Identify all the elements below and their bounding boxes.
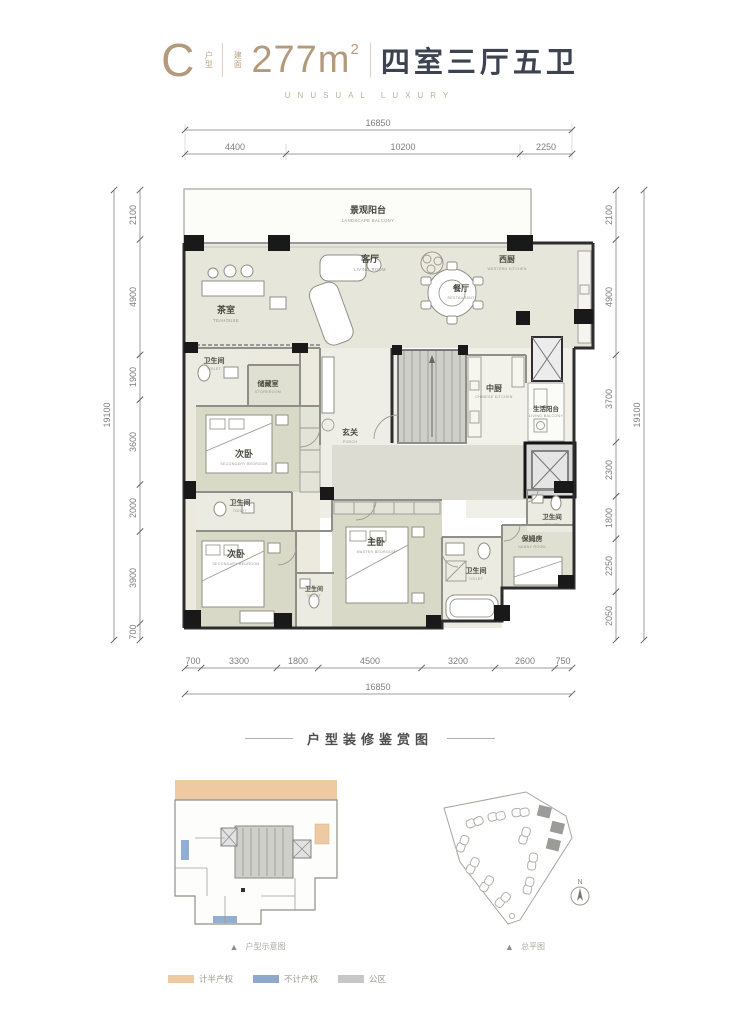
dim-bottom-2: 3300 bbox=[229, 656, 249, 666]
siteplan-caption: ▲ 总平图 bbox=[430, 941, 620, 952]
label-cn-kitchen-cn: 中厨 bbox=[486, 383, 502, 393]
dim-left-2: 4900 bbox=[128, 287, 138, 307]
label-dining-cn: 餐厅 bbox=[452, 283, 469, 293]
legend-label-counted: 计半产权 bbox=[199, 973, 233, 985]
dim-right-6: 2250 bbox=[604, 556, 614, 576]
legend-label-public: 公区 bbox=[369, 973, 386, 985]
dim-right-3: 3700 bbox=[604, 389, 614, 409]
legend-swatch-orange bbox=[168, 975, 194, 983]
label-living-cn: 客厅 bbox=[360, 253, 379, 264]
label-bedroom-b-en: SECONDARY BEDROOM bbox=[212, 562, 259, 566]
label-toilet2-en: TOILET bbox=[233, 509, 248, 513]
dim-right-total: 19100 bbox=[632, 402, 642, 427]
header: C 户型 建面 277m2 四室三厅五卫 UNUSUAL LUXURY bbox=[0, 38, 740, 100]
layout-text: 四室三厅五卫 bbox=[381, 39, 579, 81]
legend-label-not-counted: 不计产权 bbox=[284, 973, 318, 985]
label-storage-cn: 储藏室 bbox=[257, 379, 279, 388]
unit-suffix: 户型 bbox=[204, 51, 212, 69]
label-bedroom-a-en: SECONDARY BEDROOM bbox=[220, 462, 267, 466]
dim-right-1: 2100 bbox=[604, 205, 614, 225]
dim-top-2: 10200 bbox=[390, 142, 415, 152]
dim-top-total: 16850 bbox=[365, 118, 390, 128]
label-nanny-en: NANNY ROOM bbox=[518, 545, 546, 549]
label-storage-en: STOREROOM bbox=[255, 390, 281, 394]
dimension-strip-right: 2100 4900 3700 2300 1800 2250 2050 19100 bbox=[600, 184, 660, 646]
dimension-strip-left: 19100 2100 4900 1900 3600 2000 3900 700 bbox=[98, 184, 154, 646]
label-toilet3-en: TOILET bbox=[307, 594, 322, 598]
legend-item-not-counted: 不计产权 bbox=[253, 973, 318, 985]
label-master-en: MASTER BEDROOM bbox=[357, 550, 396, 554]
site-plan: N bbox=[430, 778, 620, 938]
compass-north-label: N bbox=[577, 879, 582, 886]
stairs bbox=[398, 350, 466, 443]
dim-left-7: 700 bbox=[128, 624, 138, 639]
dim-left-1: 2100 bbox=[128, 205, 138, 225]
label-life-balcony-en: LIVING BALCONY bbox=[529, 414, 563, 418]
legend-swatch-blue bbox=[253, 975, 279, 983]
dimension-strip-bottom: 700 3300 1800 4500 3200 2600 750 16850 bbox=[180, 654, 580, 706]
room-balcony bbox=[184, 189, 531, 243]
section-divider: 户型装修鉴赏图 bbox=[0, 729, 740, 748]
label-bedroom-b-cn: 次卧 bbox=[227, 548, 245, 559]
triangle-icon: ▲ bbox=[230, 942, 239, 952]
dim-right-5: 1800 bbox=[604, 508, 614, 528]
dim-bottom-6: 2600 bbox=[515, 656, 535, 666]
label-toilet5-cn: 卫生间 bbox=[542, 512, 562, 521]
dim-bottom-3: 1800 bbox=[288, 656, 308, 666]
header-divider-2 bbox=[370, 43, 371, 77]
label-toilet1-cn: 卫生间 bbox=[204, 356, 225, 365]
area-number: 277m bbox=[251, 39, 350, 81]
label-west-kitchen-en: WESTERN KITCHEN bbox=[487, 267, 526, 271]
label-toilet4-en: TOILET bbox=[469, 577, 484, 581]
floor-plan: 景观阳台 LANDSCAPE BALCONY 茶室 TEAHOUSE 客厅 LI… bbox=[180, 185, 595, 650]
label-nanny-cn: 保姆房 bbox=[521, 534, 543, 543]
dim-right-2: 4900 bbox=[604, 287, 614, 307]
label-balcony-en: LANDSCAPE BALCONY bbox=[342, 218, 395, 223]
dimension-strip-top: 16850 4400 10200 2250 bbox=[180, 116, 580, 170]
area-value: 277m2 bbox=[251, 39, 359, 82]
divider-line-left bbox=[245, 738, 293, 739]
unit-letter: C bbox=[161, 38, 194, 82]
elevator-upper bbox=[532, 337, 562, 381]
keyplan-caption: ▲ 户型示意图 bbox=[165, 941, 350, 952]
dim-right-4: 2300 bbox=[604, 460, 614, 480]
compass-icon: N bbox=[571, 879, 589, 905]
label-toilet2-cn: 卫生间 bbox=[230, 498, 251, 507]
label-tea-en: TEAHOUSE bbox=[213, 318, 239, 323]
dim-top-3: 2250 bbox=[536, 142, 556, 152]
label-living-en: LIVING ROOM bbox=[354, 267, 386, 272]
dim-left-6: 3900 bbox=[128, 568, 138, 588]
label-master-cn: 主卧 bbox=[367, 536, 385, 547]
dim-left-4: 3600 bbox=[128, 432, 138, 452]
label-bedroom-a-cn: 次卧 bbox=[235, 448, 253, 459]
key-plan bbox=[165, 778, 350, 938]
label-west-kitchen-cn: 西厨 bbox=[499, 254, 515, 264]
label-toilet3-cn: 卫生间 bbox=[305, 585, 323, 593]
dim-left-total: 19100 bbox=[102, 402, 112, 427]
label-dining-en: RESTAURANT bbox=[447, 296, 475, 300]
area-exponent: 2 bbox=[350, 41, 359, 58]
legend-swatch-gray bbox=[338, 975, 364, 983]
label-toilet5-en: TOILET bbox=[545, 523, 560, 527]
dim-left-3: 1900 bbox=[128, 367, 138, 387]
legend-item-public: 公区 bbox=[338, 973, 386, 985]
dim-bottom-7: 750 bbox=[555, 656, 570, 666]
label-life-balcony-cn: 生活阳台 bbox=[533, 404, 560, 413]
label-toilet4-cn: 卫生间 bbox=[466, 566, 487, 575]
dim-bottom-total: 16850 bbox=[365, 682, 390, 692]
label-porch-en: PORCH bbox=[343, 440, 358, 444]
label-toilet1-en: TOILET bbox=[207, 367, 222, 371]
dim-left-5: 2000 bbox=[128, 498, 138, 518]
dim-right-7: 2050 bbox=[604, 606, 614, 626]
area-prefix: 建面 bbox=[233, 51, 241, 69]
siteplan-caption-text: 总平图 bbox=[521, 941, 545, 952]
legend-item-counted: 计半产权 bbox=[168, 973, 233, 985]
label-balcony-cn: 景观阳台 bbox=[350, 204, 386, 215]
siteplan-boundary bbox=[444, 792, 572, 924]
keyplan-core bbox=[235, 826, 293, 878]
dim-bottom-5: 3200 bbox=[448, 656, 468, 666]
dim-bottom-1: 700 bbox=[185, 656, 200, 666]
dim-bottom-4: 4500 bbox=[360, 656, 380, 666]
legend: 计半产权 不计产权 公区 bbox=[168, 973, 386, 985]
section-title: 户型装修鉴赏图 bbox=[307, 729, 433, 748]
keyplan-balcony-strip bbox=[175, 780, 337, 800]
triangle-icon: ▲ bbox=[505, 942, 514, 952]
floorplan-page: C 户型 建面 277m2 四室三厅五卫 UNUSUAL LUXURY 1685… bbox=[0, 0, 740, 1029]
label-cn-kitchen-en: CHINESE KITCHEN bbox=[475, 395, 512, 399]
label-tea-cn: 茶室 bbox=[216, 304, 235, 315]
dim-top-1: 4400 bbox=[225, 142, 245, 152]
label-porch-cn: 玄关 bbox=[342, 427, 358, 437]
header-divider-1 bbox=[222, 43, 223, 77]
tagline: UNUSUAL LUXURY bbox=[0, 91, 740, 100]
keyplan-caption-text: 户型示意图 bbox=[245, 941, 285, 952]
divider-line-right bbox=[447, 738, 495, 739]
